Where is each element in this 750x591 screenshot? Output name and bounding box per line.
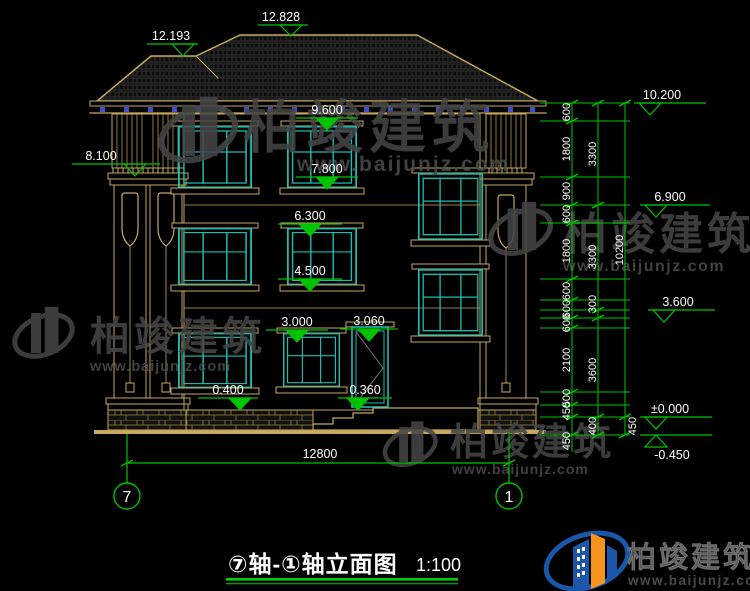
brand-logo: 柏竣建筑 www.baijunjz.com xyxy=(539,523,750,591)
elevation-marker xyxy=(634,103,706,115)
dim-chain-2: 3300 3300 300 3600 400 xyxy=(587,142,599,435)
dim-label: 450 xyxy=(627,417,639,435)
logo-url: www.baijunjz.com xyxy=(627,573,750,588)
level-label: -0.450 xyxy=(654,448,689,462)
title-underline xyxy=(226,578,458,581)
elevation-marker xyxy=(340,329,398,341)
level-label: 3.060 xyxy=(353,314,384,328)
window xyxy=(171,223,259,291)
plinth-stone xyxy=(186,410,313,430)
axis-number: 7 xyxy=(123,489,132,506)
title-text: ⑦轴-①轴立面图 xyxy=(228,551,398,577)
dim-label: 600 xyxy=(561,103,573,121)
dim-chain-1: 600 1800 900 600 1800 600 600 600 2100 5… xyxy=(561,103,573,450)
level-label: ±0.000 xyxy=(651,402,689,416)
dim-label: 3600 xyxy=(587,358,599,382)
level-label: 6.900 xyxy=(654,190,685,204)
elevation-marker xyxy=(648,310,715,322)
dim-label: 600 xyxy=(561,314,573,332)
title-scale: 1:100 xyxy=(416,555,461,575)
cad-elevation-screenshot: 柏竣建筑 www.baijunjz.com 柏竣建筑 www.baijunjz.… xyxy=(0,0,750,591)
level-label: 12.828 xyxy=(262,10,300,24)
dim-label: 400 xyxy=(587,417,599,435)
dim-label: 300 xyxy=(587,295,599,313)
elevation-marker xyxy=(640,417,712,429)
watermark: 柏竣建筑 www.baijunjz.com xyxy=(9,307,266,375)
level-label: 9.600 xyxy=(311,103,342,117)
watermark: 柏竣建筑 www.baijunjz.com xyxy=(380,421,614,477)
level-label: 3.600 xyxy=(662,295,693,309)
level-label: 8.100 xyxy=(85,149,116,163)
elevation-marker xyxy=(72,164,160,176)
elevation-marker xyxy=(640,435,712,447)
window xyxy=(280,223,364,291)
dim-label: 3300 xyxy=(587,245,599,269)
level-label: 4.500 xyxy=(294,264,325,278)
window xyxy=(276,328,347,393)
dim-label: 1800 xyxy=(561,239,573,263)
elevation-drawing: 柏竣建筑 www.baijunjz.com 柏竣建筑 www.baijunjz.… xyxy=(0,0,750,591)
dim-label: 1800 xyxy=(561,137,573,161)
level-label: 0.360 xyxy=(349,383,380,397)
roof xyxy=(97,35,538,101)
goblet-ornament xyxy=(122,193,138,246)
axis-bubble-right: 1 xyxy=(496,483,522,509)
title-underline xyxy=(226,583,458,584)
level-label: 6.300 xyxy=(294,209,325,223)
elevation-marker xyxy=(147,44,198,56)
dim-label: 3300 xyxy=(587,142,599,166)
goblet-ornament xyxy=(158,193,174,246)
logo-brand: 柏竣建筑 xyxy=(627,540,750,574)
level-label: 0.400 xyxy=(212,383,243,397)
logo-building-wing xyxy=(607,545,617,581)
dim-label: 12800 xyxy=(303,447,338,461)
dim-label: 450 xyxy=(561,402,573,420)
dim-label: 600 xyxy=(561,205,573,223)
dim-label: 600 xyxy=(561,282,573,300)
dentils xyxy=(113,168,178,173)
logo-building-blue xyxy=(573,539,589,591)
watermark-brand: 柏竣建筑 xyxy=(243,96,495,160)
dim-label: 10200 xyxy=(614,235,626,266)
dim-label: 900 xyxy=(561,182,573,200)
level-label: 10.200 xyxy=(643,88,681,102)
level-label: 3.000 xyxy=(281,315,312,329)
axis-number: 1 xyxy=(505,489,514,506)
logo-building-orange xyxy=(591,533,605,589)
level-label: 12.193 xyxy=(152,29,190,43)
dim-label: 2100 xyxy=(561,348,573,372)
window xyxy=(411,168,490,246)
drawing-title: ⑦轴-①轴立面图 1:100 xyxy=(226,551,461,584)
dim-label: 450 xyxy=(561,432,573,450)
level-label: 7.800 xyxy=(311,162,342,176)
elevation-marker xyxy=(198,398,258,410)
watermark-url: www.baijunjz.com xyxy=(89,359,231,375)
window xyxy=(411,264,490,342)
axis-bubble-left: 7 xyxy=(114,483,140,509)
watermark-brand: 柏竣建筑 xyxy=(90,315,266,359)
